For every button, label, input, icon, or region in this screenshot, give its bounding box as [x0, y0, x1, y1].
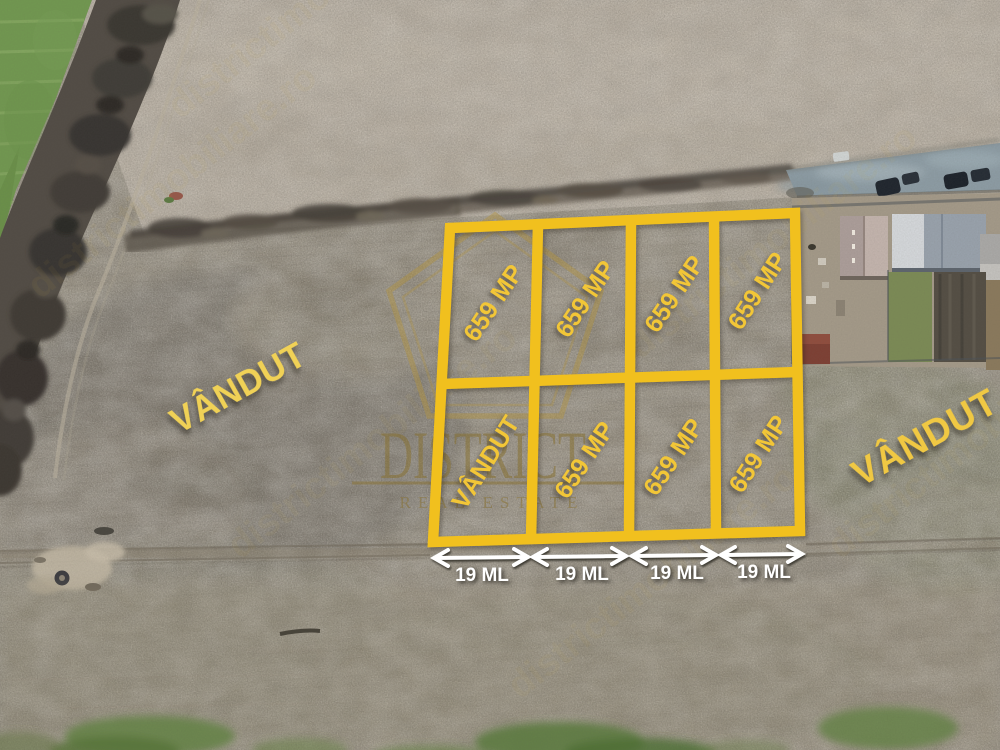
svg-text:19 ML: 19 ML: [555, 564, 609, 585]
svg-text:19 ML: 19 ML: [737, 562, 791, 583]
svg-text:REAL ESTATE: REAL ESTATE: [399, 493, 584, 512]
svg-text:19 ML: 19 ML: [455, 565, 509, 586]
svg-text:19 ML: 19 ML: [650, 563, 704, 584]
